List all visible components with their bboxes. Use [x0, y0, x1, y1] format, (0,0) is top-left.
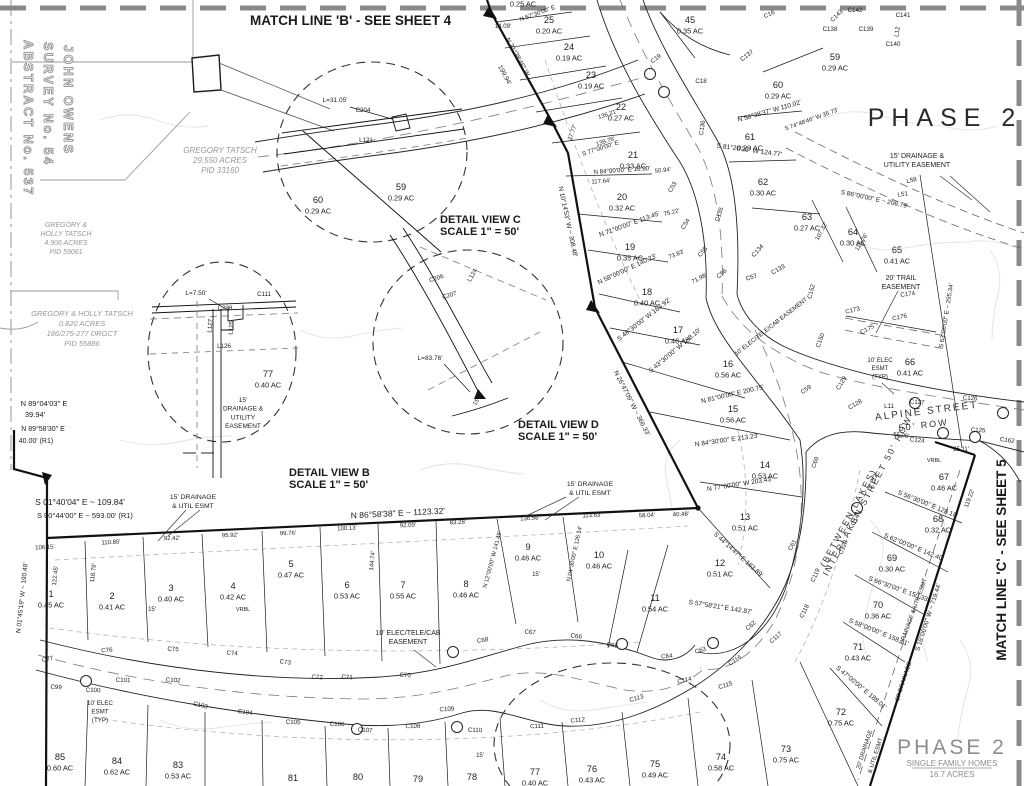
- lot-acreage: 0.20 AC: [536, 27, 563, 36]
- curve-label: C116: [727, 654, 743, 668]
- lot-number: 67: [939, 472, 949, 482]
- lot-number: 3: [168, 583, 173, 593]
- parcel-owner-label: 0.820 ACRES: [59, 319, 105, 328]
- lot-acreage: 0.47 AC: [278, 571, 305, 580]
- lot-number: 78: [467, 772, 477, 782]
- lot-number: 68: [933, 514, 943, 524]
- lot-acreage: 0.62 AC: [104, 768, 131, 777]
- curve-label: C60: [810, 456, 820, 469]
- dimension-label: 71.98': [691, 273, 708, 286]
- bearing-label: N 71°00'00" E 113.45': [598, 209, 661, 238]
- easement-note: EASEMENT: [882, 284, 921, 291]
- parcel-owner-label: HOLLY TATSCH: [40, 231, 92, 238]
- curve-label: C55: [697, 245, 710, 259]
- lot-number: 83: [173, 760, 183, 770]
- bearing-labels: N 31°38'46" W199.94'N 10°14'53" W ~ 308.…: [14, 5, 959, 711]
- curve-label: C127: [909, 398, 925, 406]
- lot-acreage: 0.46 AC: [515, 554, 542, 563]
- lot-number: 59: [830, 52, 840, 62]
- lot-acreage: 0.56 AC: [715, 371, 742, 380]
- road-stub-box: [192, 55, 221, 92]
- easement-note: EASEMENT: [225, 423, 261, 430]
- lot-number: 65: [892, 245, 902, 255]
- dimension-label: 122.45': [52, 566, 60, 586]
- bearing-label: 39.94': [25, 410, 46, 419]
- detail-view-b-title: DETAIL VIEW B: [289, 467, 370, 479]
- lot-number: 9: [525, 542, 530, 552]
- lot-number: 19: [625, 242, 635, 252]
- lot-number: 79: [413, 774, 423, 784]
- bearing-label: N 12°00'00" W 141.45': [483, 531, 504, 589]
- phase-2-bottom-acres: 16.7 ACRES: [930, 770, 975, 779]
- lot-acreage: 0.40 AC: [522, 779, 549, 786]
- lot-number: 66: [905, 357, 915, 367]
- curve-label: C19: [649, 52, 663, 65]
- parcel-owner-label: GREGORY & HOLLY TATSCH: [31, 309, 133, 318]
- lot-acreage: 0.30 AC: [879, 565, 906, 574]
- lot-number: 84: [112, 756, 122, 766]
- lot-acreage: 0.58 AC: [708, 764, 735, 773]
- curve-label: C208: [218, 305, 233, 312]
- easement-note: UTILITY EASEMENT: [884, 162, 951, 169]
- curve-label: C63: [694, 645, 707, 655]
- lot-acreage: 0.40 AC: [255, 381, 282, 390]
- easement-note: 15': [239, 397, 247, 404]
- easement-note: (TYP): [92, 717, 108, 724]
- lot-acreage: 0.29 AC: [765, 92, 792, 101]
- curve-label: C53: [667, 180, 679, 194]
- curve-label: C75: [167, 646, 179, 653]
- parcel-owner-label: GREGORY TATSCH: [183, 146, 257, 155]
- lot-acreage: 0.29 AC: [305, 207, 332, 216]
- curve-label: C70: [399, 672, 411, 680]
- curve-label: L51: [897, 190, 909, 198]
- bearing-label: N 86°58'38" E ~ 1123.32': [350, 506, 445, 521]
- easement-note: 10' DRAINAGE: [895, 661, 913, 702]
- lot-number: 7: [400, 580, 405, 590]
- easement-note: & UTIL ESMT: [172, 503, 214, 510]
- lot-number: 60: [773, 80, 783, 90]
- dimension-label: 58.04': [639, 513, 655, 520]
- dimension-label: 83.28': [450, 520, 466, 527]
- bearing-label: S 00°44'00" E ~ 593.00' (R1): [37, 511, 133, 520]
- curve-label: C141: [896, 12, 911, 19]
- boundary-lines: [14, 0, 975, 786]
- curve-label: C64: [661, 652, 674, 660]
- curve-label: C174: [900, 290, 916, 299]
- curve-label: L121: [359, 137, 373, 144]
- curve-label: C77: [41, 655, 54, 664]
- lot-acreage: 0.43 AC: [579, 776, 606, 785]
- parcel-owner-label: 4.906 ACRES: [44, 240, 88, 247]
- dimension-label: 40.48': [673, 512, 689, 519]
- dimension-label: 117.64': [591, 178, 610, 185]
- easement-note: 15' DRAINAGE &: [890, 153, 945, 160]
- lot-acreage: 0.46 AC: [453, 591, 480, 600]
- detail-circle-b-view: [148, 262, 296, 442]
- bearing-label: N 89°58'30" E: [21, 425, 65, 433]
- dimension-label: 110.85': [101, 540, 120, 547]
- curve-label: C102: [165, 676, 181, 684]
- lot-number: 69: [887, 553, 897, 563]
- easement-note: 10' ELEC: [867, 358, 893, 364]
- curve-label: C109: [439, 705, 455, 713]
- curve-label: L124: [466, 267, 479, 283]
- lot-number: 60: [313, 195, 323, 205]
- lot-acreage: 0.29 AC: [388, 194, 415, 203]
- lot-number: 6: [344, 580, 349, 590]
- misc-label: L=31.05': [323, 97, 348, 104]
- curve-label: C54: [680, 217, 692, 231]
- lot-number: 13: [740, 512, 750, 522]
- easement-note: 15' DRAINAGE: [567, 481, 614, 488]
- dimension-label: 14.09': [495, 24, 511, 30]
- lot-acreage: 0.55 AC: [390, 592, 417, 601]
- curve-label: C101: [116, 677, 132, 685]
- easement-notes: 15' DRAINAGE &UTILITY EASEMENT20' TRAILE…: [87, 153, 951, 774]
- misc-label: VRBL: [927, 458, 941, 464]
- lot-number: 25: [544, 15, 554, 25]
- curve-label: C57: [745, 272, 758, 282]
- lot-acreage: 0.56 AC: [720, 416, 747, 425]
- lot-number: 77: [530, 767, 540, 777]
- curve-label: C175: [859, 323, 876, 336]
- road-stub-lines: [219, 63, 334, 131]
- detail-view-d-title: DETAIL VIEW D: [518, 419, 599, 431]
- curve-label: C125: [970, 426, 986, 434]
- dimension-label: 92.09': [400, 523, 416, 530]
- lot-number: 14: [760, 460, 770, 470]
- easement-note: & UTIL ESMT: [569, 490, 611, 497]
- dimension-label: 15': [532, 572, 540, 578]
- curve-label: C150: [815, 332, 827, 349]
- lot-acreage: 0.43 AC: [845, 654, 872, 663]
- lot-number: 2: [109, 591, 114, 601]
- curve-label: C142: [848, 7, 863, 14]
- easement-note: ESMT: [91, 708, 108, 715]
- lot-number: 5: [288, 559, 293, 569]
- easement-note: ESMT: [872, 366, 889, 372]
- lot-number: 24: [564, 42, 574, 52]
- lot-acreage: 0.40 AC: [158, 595, 185, 604]
- lot-acreage: 0.51 AC: [707, 570, 734, 579]
- lot-number: 16: [723, 359, 733, 369]
- lot-acreage: 0.41 AC: [884, 257, 911, 266]
- curve-label: C62: [744, 619, 758, 632]
- bearing-label: N 81°00'00" E 200.75': [700, 383, 764, 405]
- parcel-owner-label: PID 59061: [49, 249, 82, 256]
- curve-label: C68: [477, 636, 490, 645]
- curve-label: C74: [226, 650, 238, 658]
- curve-label: C111: [530, 723, 545, 730]
- curve-label: C119: [810, 567, 822, 583]
- detail-view-c-title: DETAIL VIEW C: [440, 214, 521, 226]
- lot-number: 73: [781, 744, 791, 754]
- easement-note: EASEMENT: [389, 639, 428, 646]
- dimension-label: 25.11': [953, 447, 969, 453]
- curve-label: C138: [823, 26, 838, 33]
- bearing-label: N 31°38'46" W: [504, 36, 532, 78]
- curve-label: C140: [886, 41, 901, 48]
- lot-acreage: 0.35 AC: [677, 27, 704, 36]
- dimension-label: 15': [148, 607, 156, 613]
- bearing-label: N 58°38'37" W 110.02': [737, 98, 802, 124]
- curve-label: C118: [798, 603, 811, 619]
- lot-acreage: 0.60 AC: [47, 764, 74, 773]
- curve-label: C134: [750, 243, 765, 259]
- dimension-label: 118.79': [90, 563, 98, 583]
- lot-number: 71: [853, 642, 863, 652]
- bearing-label: S 57°58'21" E 142.87': [688, 598, 752, 616]
- dimension-label: 100.13': [337, 525, 357, 532]
- lot-number: 23: [586, 70, 596, 80]
- lot-number: 59: [396, 182, 406, 192]
- curve-label: C104: [237, 708, 253, 717]
- curve-label: C108: [405, 723, 421, 731]
- lot-number: 81: [288, 773, 298, 783]
- parcel-owner-labels: GREGORY TATSCH29.550 ACRESPID 33160GREGO…: [31, 146, 257, 348]
- phase-2-bottom-sub: SINGLE FAMILY HOMES: [907, 759, 998, 768]
- easement-note: (TYP): [872, 374, 888, 380]
- curve-label: L11: [884, 403, 894, 410]
- curve-label: C207: [441, 290, 458, 301]
- lot-number: 21: [628, 150, 638, 160]
- lot-number: 22: [616, 102, 626, 112]
- survey-name-text: JOHN OWENS: [61, 45, 75, 155]
- curve-label: C115: [718, 680, 734, 691]
- easement-note: 10' ELEC: [87, 700, 113, 707]
- plat-svg: MATCH LINE 'B' - SEE SHEET 4 MATCH LINE …: [0, 0, 1024, 786]
- lot-number: 76: [587, 764, 597, 774]
- curve-label: C107: [357, 726, 373, 734]
- lot-number: 75: [650, 759, 660, 769]
- lot-acreage: 0.30 AC: [750, 189, 777, 198]
- lot-number: 8: [463, 579, 468, 589]
- lot-number: 12: [715, 558, 725, 568]
- curve-label: C106: [330, 721, 346, 729]
- lot-number: 72: [836, 707, 846, 717]
- bearing-label: 199.94': [496, 64, 513, 86]
- bearing-label: N 77°00'00" W 203.43': [706, 475, 773, 493]
- dimension-label: 50.94': [655, 167, 672, 175]
- curve-label: C117: [768, 630, 784, 645]
- parcel-owner-label: PID 55886: [64, 339, 100, 348]
- easement-note: DRAINAGE &: [223, 406, 264, 413]
- curve-label: C105: [286, 719, 302, 727]
- lot-acreage: 0.75 AC: [773, 756, 800, 765]
- dimension-label: 15': [476, 753, 484, 759]
- detail-view-b-scale: SCALE 1" = 50': [289, 479, 368, 491]
- curve-label: C133: [770, 263, 787, 277]
- curve-label: C111: [257, 291, 271, 298]
- curve-label: C66: [570, 632, 583, 641]
- match-line-c-label: MATCH LINE 'C' - SEE SHEET 5: [994, 459, 1009, 661]
- lot-number: 63: [802, 212, 812, 222]
- bearing-label: S 56°30'00" E 128.18': [897, 488, 959, 519]
- dimension-label: 92.42': [164, 536, 180, 543]
- curve-label: C110: [468, 727, 483, 735]
- dimension-label: 119.22': [964, 489, 976, 509]
- misc-label: VRBL: [236, 607, 250, 613]
- easement-note: 10' ELEC/TELE/CAB: [375, 630, 440, 637]
- dimension-label: 27.77': [567, 124, 578, 141]
- lot-acreage: 0.54 AC: [642, 605, 669, 614]
- lot-acreage: 0.53 AC: [334, 592, 361, 601]
- lot-number: 4: [230, 581, 235, 591]
- parcel-owner-label: GREGORY &: [45, 222, 87, 229]
- lot-number: 77: [263, 369, 273, 379]
- curve-label: C76: [101, 647, 113, 655]
- curve-label: C137: [739, 48, 755, 63]
- curve-label: C204: [356, 107, 371, 114]
- curve-label: L125: [227, 320, 235, 335]
- misc-label: L=7.50': [185, 290, 206, 297]
- bearing-label: 40.00' (R1): [19, 438, 53, 445]
- bearing-label: S 74°48'46" W 35.73': [784, 108, 839, 133]
- lot-acreage: 0.42 AC: [220, 593, 247, 602]
- curve-label: C72: [311, 674, 323, 682]
- lot-number: 10: [594, 550, 604, 560]
- curve-label: C152: [806, 283, 817, 300]
- lot-acreage: 0.49 AC: [642, 771, 669, 780]
- lot-number: 20: [617, 192, 627, 202]
- dimension-label: 75.22': [663, 208, 680, 218]
- curve-label: C136: [698, 119, 707, 135]
- lot-number: 1: [48, 589, 53, 599]
- lot-acreage: 0.75 AC: [828, 719, 855, 728]
- dimension-label: 144.74': [369, 551, 377, 571]
- lot-acreage: 0.27 AC: [794, 224, 821, 233]
- lot-number: 74: [716, 752, 726, 762]
- parcel-owner-label: PID 33160: [201, 166, 239, 175]
- lot-number: 64: [848, 227, 858, 237]
- dimension-label: 99.76': [280, 531, 296, 538]
- detail-view-c-scale: SCALE 1" = 50': [440, 226, 519, 238]
- lot-number: 61: [745, 132, 755, 142]
- curve-label: C139: [859, 26, 874, 33]
- lot-acreage: 0.29 AC: [822, 64, 849, 73]
- lot-number: 62: [758, 177, 768, 187]
- lot-number: 70: [873, 600, 883, 610]
- phase-2-top-label: PHASE 2: [868, 104, 1023, 132]
- curve-label: C56: [715, 267, 729, 280]
- lot-number: 80: [353, 772, 363, 782]
- curve-label: C124: [909, 436, 925, 445]
- dimension-label: 95.92': [222, 533, 238, 540]
- dimension-label: 136.56': [520, 515, 540, 522]
- lot-number: 15: [728, 404, 738, 414]
- lot-acreage: 0.19 AC: [578, 82, 605, 91]
- bearing-label: S 01°40'04" E ~ 109.84': [35, 497, 125, 507]
- curve-label: C103: [192, 700, 209, 711]
- survey-abstract-text: ABSTRACT No. 537: [21, 40, 35, 197]
- easement-note: 15' DRAINAGE: [170, 494, 217, 501]
- lot-acreage: 0.46 AC: [586, 562, 613, 571]
- lot-acreage: 0.41 AC: [897, 369, 924, 378]
- survey-number-text: SURVEY No. 54: [41, 42, 55, 166]
- misc-label: L=83.76': [418, 355, 443, 362]
- curve-label: L127: [206, 318, 214, 333]
- curve-label: C59: [799, 383, 813, 396]
- curve-label: C18: [695, 78, 707, 85]
- curve-label: C65: [606, 641, 619, 650]
- bearing-label: N 04°30'00" E 126.14': [566, 526, 584, 583]
- lot-number: 11: [650, 593, 660, 603]
- lot-acreage: 0.36 AC: [865, 612, 892, 621]
- lot-acreage: 0.46 AC: [931, 484, 958, 493]
- curve-label: C173: [845, 305, 862, 316]
- curve-label: C73: [279, 658, 292, 667]
- lot-acreage: 0.41 AC: [99, 603, 126, 612]
- curve-label: C135: [714, 206, 725, 223]
- parcel-owner-label: 29.550 ACRES: [192, 156, 248, 165]
- curve-label: C162: [999, 436, 1015, 445]
- curve-label: C99: [50, 684, 62, 692]
- curve-label: C100: [86, 687, 102, 695]
- curve-label: C176: [892, 312, 908, 322]
- dimension-label: 113.63': [582, 513, 601, 520]
- detail-view-d-scale: SCALE 1" = 50': [518, 431, 597, 443]
- lot-acreage: 0.45 AC: [38, 601, 65, 610]
- curve-label: L58: [906, 176, 918, 185]
- curve-label: L12: [893, 26, 902, 38]
- lot-number: 17: [673, 325, 683, 335]
- lot-acreage: 0.25 AC: [510, 0, 537, 9]
- curve-label: C126: [962, 394, 978, 402]
- lot-acreage: 0.32 AC: [609, 204, 636, 213]
- lot-number: 85: [55, 752, 65, 762]
- parcel-owner-label: 186/275-277 DRGCT: [47, 329, 119, 338]
- bearing-label: S 47°00'00" E 188.01': [834, 664, 888, 711]
- curve-label: C71: [341, 674, 353, 681]
- bearing-label: N 89°04'03" E: [21, 399, 68, 408]
- curve-label: C112: [570, 716, 586, 725]
- easement-note: UTILITY: [231, 414, 256, 421]
- bearing-label: N 01°45'19" W ~ 190.49': [14, 562, 29, 633]
- dimension-label: 106.15': [35, 544, 55, 551]
- lot-acreage: 0.19 AC: [556, 54, 583, 63]
- bearing-label: N 84°30'00" E 213.23': [694, 432, 759, 449]
- curve-label: C16: [763, 9, 777, 20]
- dimension-label: 73.83': [668, 249, 685, 261]
- lot-lines: [85, 12, 962, 786]
- lot-acreage: 0.51 AC: [732, 524, 759, 533]
- bearing-label: S 63°00'00" E ~ 295.34': [938, 283, 955, 349]
- lot-number: 18: [642, 287, 652, 297]
- match-line-b-label: MATCH LINE 'B' - SEE SHEET 4: [250, 13, 452, 28]
- curve-label: C128: [847, 398, 864, 412]
- curve-label: L126: [217, 343, 231, 350]
- easement-note: 20' TRAIL: [886, 275, 917, 282]
- plat-sheet: MATCH LINE 'B' - SEE SHEET 4 MATCH LINE …: [0, 0, 1024, 786]
- lot-acreage: 0.53 AC: [165, 772, 192, 781]
- curve-label: C67: [524, 629, 536, 637]
- lot-number: 45: [685, 15, 695, 25]
- misc-labels: L=31.05'L=7.50'L=83.76'15'EVRBLVRBL: [185, 97, 941, 613]
- phase-2-bottom-title: PHASE 2: [897, 736, 1007, 759]
- lot-acreage: 0.32 AC: [925, 526, 952, 535]
